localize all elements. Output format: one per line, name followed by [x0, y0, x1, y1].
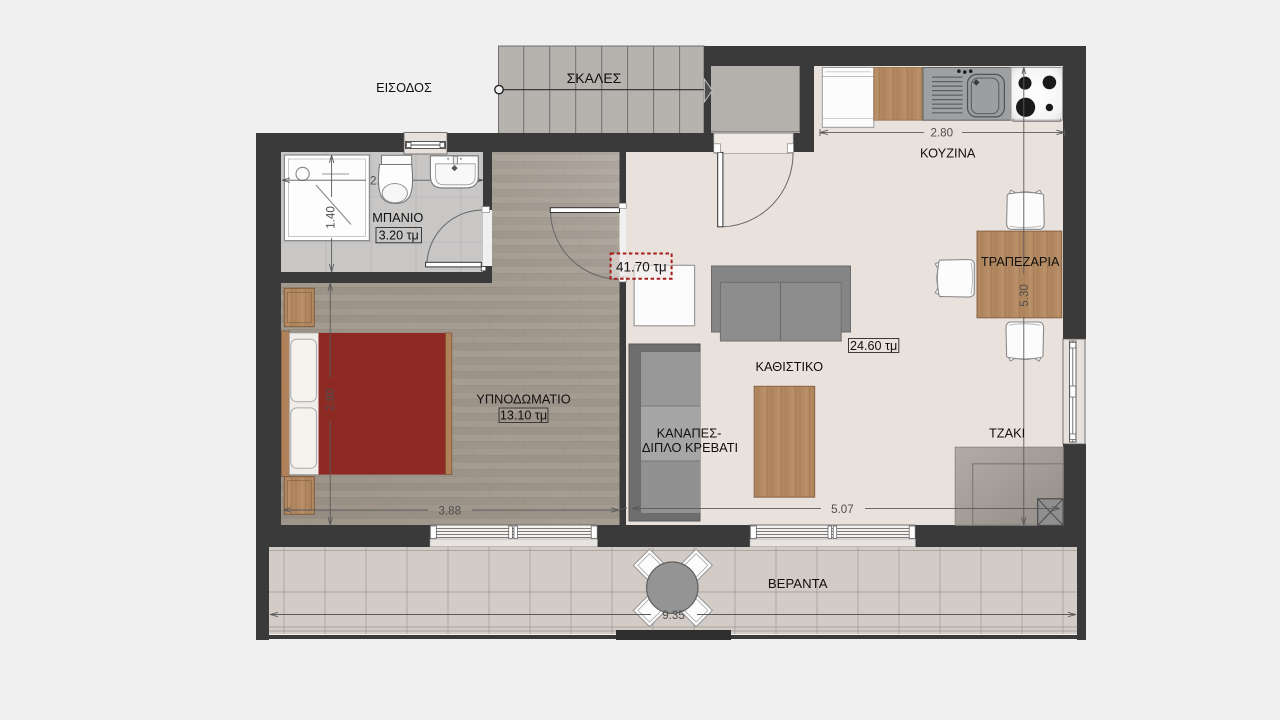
svg-text:24.60 τμ: 24.60 τμ [850, 339, 897, 353]
svg-text:3.20 τμ: 3.20 τμ [379, 229, 419, 243]
svg-text:ΤΡΑΠΕΖΑΡΙΑ: ΤΡΑΠΕΖΑΡΙΑ [981, 254, 1060, 269]
svg-text:2.80: 2.80 [324, 388, 337, 411]
svg-text:ΚΑΘΙΣΤΙΚΟ: ΚΑΘΙΣΤΙΚΟ [755, 359, 823, 374]
svg-text:ΕΙΣΟΔΟΣ: ΕΙΣΟΔΟΣ [376, 80, 432, 95]
svg-text:3.88: 3.88 [439, 504, 462, 517]
svg-text:1.40: 1.40 [325, 206, 338, 229]
svg-text:ΚΟΥΖΙΝΑ: ΚΟΥΖΙΝΑ [920, 146, 976, 161]
svg-text:ΤΖΑΚΙ: ΤΖΑΚΙ [989, 425, 1025, 440]
svg-text:5.30: 5.30 [1018, 284, 1031, 307]
svg-text:ΣΚΑΛΕΣ: ΣΚΑΛΕΣ [567, 70, 622, 86]
svg-text:9.35: 9.35 [662, 609, 685, 622]
svg-text:ΒΕΡΑΝΤΑ: ΒΕΡΑΝΤΑ [768, 576, 828, 591]
svg-text:41.70 τμ: 41.70 τμ [616, 260, 667, 275]
svg-text:13.10 τμ: 13.10 τμ [500, 409, 547, 423]
svg-text:ΚΑΝΑΠΕΣ-: ΚΑΝΑΠΕΣ- [657, 425, 722, 440]
svg-text:ΥΠΝΟΔΩΜΑΤΙΟ: ΥΠΝΟΔΩΜΑΤΙΟ [476, 392, 570, 407]
svg-text:ΜΠΑΝΙΟ: ΜΠΑΝΙΟ [372, 210, 423, 225]
svg-text:2.80: 2.80 [931, 127, 954, 140]
svg-text:5.07: 5.07 [831, 503, 854, 516]
svg-text:ΔΙΠΛΟ ΚΡΕΒΑΤΙ: ΔΙΠΛΟ ΚΡΕΒΑΤΙ [642, 440, 738, 455]
